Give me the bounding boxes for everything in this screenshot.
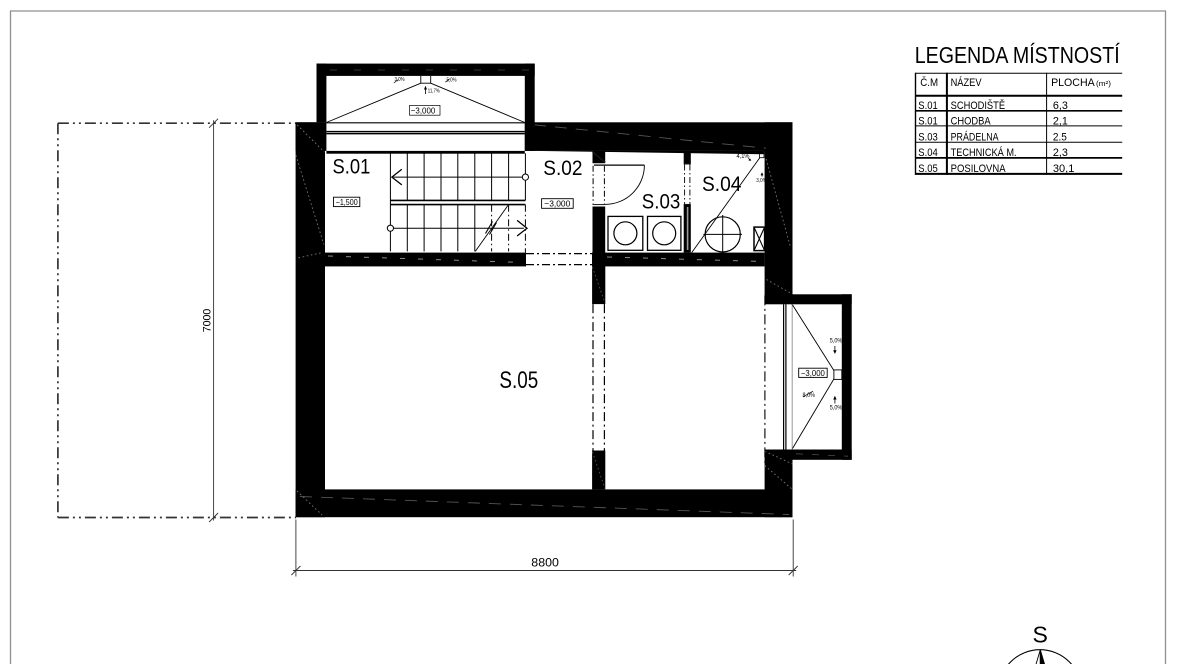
svg-text:S.04: S.04 [702, 173, 742, 196]
svg-text:S.05: S.05 [499, 368, 538, 394]
svg-text:7000: 7000 [202, 309, 214, 333]
svg-text:8800: 8800 [531, 556, 559, 570]
svg-text:−3,000: −3,000 [544, 199, 570, 209]
svg-text:SCHODIŠTĚ: SCHODIŠTĚ [951, 99, 1006, 112]
svg-text:S.01: S.01 [918, 100, 938, 112]
svg-text:30,1: 30,1 [1053, 163, 1075, 175]
svg-text:(m²): (m²) [1096, 81, 1111, 88]
svg-text:CHODBA: CHODBA [951, 115, 992, 127]
svg-text:3,0%: 3,0% [395, 77, 405, 83]
svg-text:S.03: S.03 [918, 131, 938, 143]
svg-text:NÁZEV: NÁZEV [951, 76, 983, 89]
svg-text:−1,500: −1,500 [336, 198, 358, 207]
svg-text:POSILOVNA: POSILOVNA [951, 163, 1007, 175]
svg-text:8,0%: 8,0% [803, 392, 816, 399]
svg-text:S.01: S.01 [333, 155, 371, 178]
svg-text:S.04: S.04 [918, 147, 938, 159]
svg-text:TECHNICKÁ M.: TECHNICKÁ M. [951, 146, 1017, 159]
svg-text:S: S [1033, 621, 1048, 647]
svg-text:4,1%: 4,1% [737, 153, 750, 160]
svg-text:S.01: S.01 [918, 115, 938, 127]
svg-text:PLOCHA: PLOCHA [1051, 77, 1096, 89]
svg-text:−3,000: −3,000 [411, 106, 436, 116]
svg-text:6,3: 6,3 [1053, 100, 1068, 112]
svg-text:2,3: 2,3 [1053, 147, 1068, 159]
svg-text:S.02: S.02 [543, 157, 582, 180]
svg-text:11,7%: 11,7% [428, 89, 440, 95]
svg-text:5,0%: 5,0% [830, 338, 843, 345]
svg-text:−3,000: −3,000 [801, 369, 825, 378]
svg-text:5,0%: 5,0% [830, 404, 843, 411]
svg-text:PRÁDELNA: PRÁDELNA [951, 130, 1000, 143]
svg-text:S.05: S.05 [918, 163, 938, 175]
svg-text:LEGENDA MÍSTNOSTÍ: LEGENDA MÍSTNOSTÍ [915, 42, 1121, 68]
svg-text:3,0%: 3,0% [756, 178, 767, 184]
svg-text:2.5: 2.5 [1053, 131, 1067, 143]
svg-text:Č.M: Č.M [920, 76, 938, 89]
svg-text:2,1: 2,1 [1053, 115, 1068, 127]
svg-text:S.03: S.03 [642, 190, 681, 213]
